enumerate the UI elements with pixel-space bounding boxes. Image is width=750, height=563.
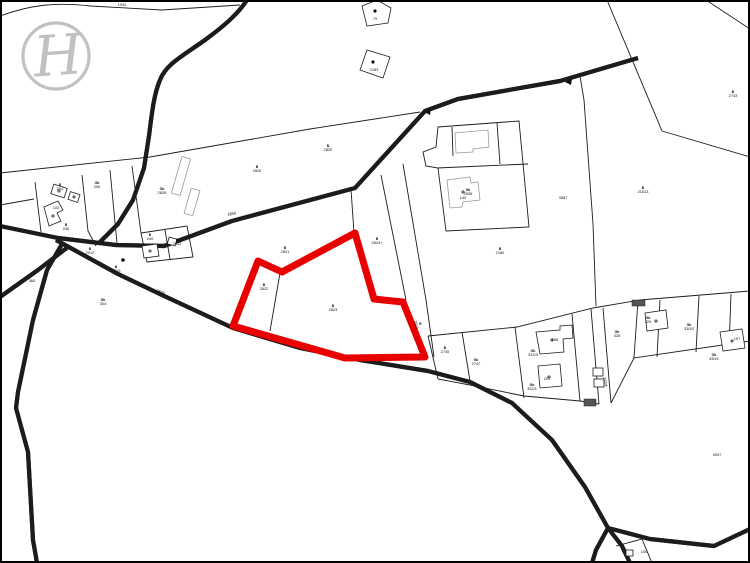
parcel-label: Gb332/1 bbox=[527, 383, 537, 391]
parcel-label: B202/1 bbox=[111, 265, 121, 273]
garage bbox=[626, 550, 633, 556]
boundary-right-vertical bbox=[580, 76, 596, 306]
boundary-top-right bbox=[607, 0, 750, 157]
parcel-label: 79 bbox=[373, 16, 377, 21]
survey-dot bbox=[373, 9, 376, 12]
parcel-label: B2820 bbox=[324, 144, 333, 152]
parcel-label: 2807 bbox=[448, 374, 457, 381]
boundary-garage-strip bbox=[591, 308, 611, 404]
parcel-label: Gb304 bbox=[100, 298, 107, 306]
parcel-label: B21813 bbox=[638, 186, 649, 194]
parcel-label: B204 bbox=[57, 183, 64, 191]
parcel-label: 158 bbox=[552, 337, 559, 342]
parcel-label: 2850 bbox=[227, 210, 237, 216]
map-frame bbox=[1, 1, 749, 562]
parcel-label: B2824+ bbox=[372, 237, 384, 245]
parcel-label: B2180 bbox=[496, 247, 505, 255]
roads bbox=[0, 0, 750, 563]
parcel-label: B2825 bbox=[253, 165, 262, 173]
point-markers bbox=[51, 9, 734, 379]
buildings bbox=[44, 0, 745, 556]
parcel-label: Gb332/3 bbox=[528, 349, 538, 357]
parcel-label: B2745 bbox=[441, 346, 450, 354]
parcel-label: 2183 bbox=[370, 67, 379, 72]
parcel-label: B2822 bbox=[260, 283, 269, 291]
boundary-cluster-verticals bbox=[428, 314, 580, 401]
parcel-label: 150 bbox=[641, 549, 648, 554]
boundary-apex-link bbox=[351, 189, 354, 233]
parcel-label: 201 bbox=[544, 376, 551, 381]
parcel-label: 140 bbox=[460, 195, 467, 200]
boundary-inner-parcel bbox=[270, 273, 280, 331]
parcel-label: 157 bbox=[734, 336, 741, 341]
boundary-left-cluster bbox=[0, 166, 141, 246]
parcel-label: B246 bbox=[63, 223, 70, 231]
logo-letter: H bbox=[30, 22, 85, 90]
parcel-label: Gb330/2 bbox=[684, 323, 694, 331]
parcel-label: Gb329 bbox=[645, 316, 652, 324]
parcel-label: 102 bbox=[53, 205, 60, 210]
parcel-pentagon bbox=[362, 0, 391, 26]
parcel-label: 3587 bbox=[559, 195, 568, 200]
garage bbox=[593, 368, 603, 376]
parcel-label: Gb2826 bbox=[158, 187, 167, 195]
road-curvy-north bbox=[100, 0, 247, 242]
parcel-label: 1944 bbox=[118, 2, 127, 7]
parcel-label: B2012 bbox=[86, 247, 95, 255]
parcel-label: B2821 bbox=[281, 246, 290, 254]
parcel-label: B2823 bbox=[329, 304, 338, 312]
boundary-cluster-top bbox=[428, 291, 750, 336]
survey-dot bbox=[121, 258, 125, 262]
boundary-strip-left bbox=[381, 175, 406, 300]
garage-dark bbox=[632, 300, 645, 306]
boundary-upper-band bbox=[0, 112, 420, 173]
house-157 bbox=[720, 329, 745, 351]
boundary-cluster-bottom bbox=[438, 379, 599, 404]
parcel-boundaries bbox=[0, 0, 750, 563]
parcel-label: Gb2747 bbox=[472, 358, 481, 366]
parcel-label: 360 bbox=[29, 278, 36, 283]
cadastral-map: 1944792183B2743B21813B2825B2820B2821B282… bbox=[0, 0, 750, 563]
brand-logo: H bbox=[23, 22, 89, 90]
parcel-square bbox=[360, 50, 390, 78]
parcel-label: Gb328 bbox=[614, 330, 621, 338]
building-cross-markers bbox=[51, 189, 734, 379]
parcel-label: 4937 bbox=[713, 452, 722, 457]
map-canvas: 1944792183B2743B21813B2825B2820B2821B282… bbox=[0, 0, 750, 563]
survey-dot bbox=[371, 60, 374, 63]
garage bbox=[594, 379, 604, 387]
parcel-labels: 1944792183B2743B21813B2825B2820B2821B282… bbox=[29, 2, 741, 554]
garage-dark bbox=[584, 399, 596, 406]
parcel-label: B2743 bbox=[729, 90, 738, 98]
parcel-label: B240 bbox=[147, 233, 154, 241]
greenhouse bbox=[184, 188, 200, 215]
greenhouse bbox=[171, 156, 190, 195]
parcel-label: Gb330/1 bbox=[709, 353, 719, 361]
parcel-label: Gb206 bbox=[94, 181, 101, 189]
farm-building bbox=[455, 130, 489, 153]
